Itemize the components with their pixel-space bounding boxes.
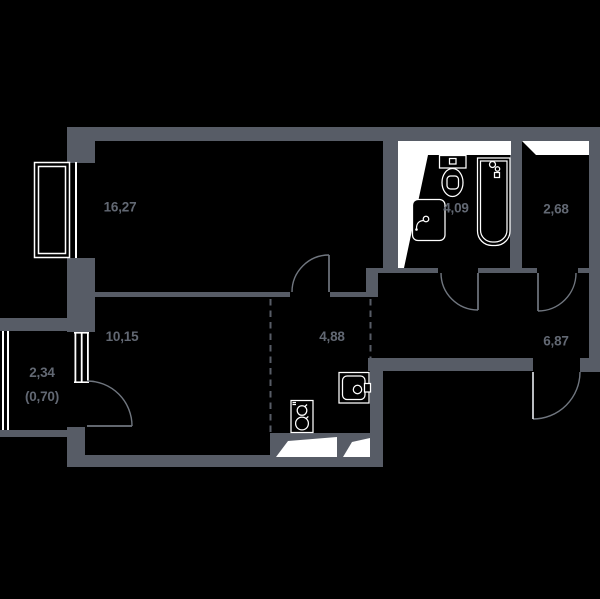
wall-right bbox=[589, 127, 600, 372]
window-pane-room1 bbox=[75, 162, 77, 258]
balcony-glazing-line-1 bbox=[2, 331, 4, 430]
balcony-window-cap-bottom bbox=[74, 381, 89, 383]
wall-hall-north-a bbox=[378, 268, 438, 273]
washbasin-icon bbox=[413, 200, 446, 241]
label-bathroom: 4,09 bbox=[443, 201, 468, 216]
balcony-wall-top bbox=[0, 318, 67, 331]
wall-left-mid bbox=[67, 258, 95, 332]
stove-icon bbox=[291, 401, 313, 433]
wall-corridor-bottom bbox=[368, 358, 533, 371]
floorplan-svg: 16,27 10,15 2,34 (0,70) 4,88 4,09 2,68 6… bbox=[0, 0, 600, 599]
label-hallway: 6,87 bbox=[543, 334, 568, 349]
label-wc: 2,68 bbox=[543, 202, 569, 217]
wall-top bbox=[67, 127, 600, 141]
wall-hall-connector bbox=[366, 268, 378, 297]
balcony-window-cap-top bbox=[74, 332, 89, 334]
wall-corridor-bottom-right bbox=[580, 358, 600, 372]
wall-left-upper bbox=[67, 127, 95, 163]
wall-bathroom-divider bbox=[510, 141, 522, 273]
balcony-wall-bottom bbox=[0, 430, 67, 437]
balcony-glazing-line-2 bbox=[7, 331, 9, 430]
kitchen-sink-icon bbox=[339, 373, 371, 404]
label-kitchen: 4,88 bbox=[319, 329, 345, 344]
floorplan-stage: 16,27 10,15 2,34 (0,70) 4,88 4,09 2,68 6… bbox=[0, 0, 600, 599]
label-room-16-27: 16,27 bbox=[104, 200, 137, 215]
balcony-window-line-3 bbox=[87, 332, 89, 383]
wall-left-lower-block bbox=[67, 427, 85, 467]
balcony-window-line-2 bbox=[81, 332, 83, 383]
bathtub-icon bbox=[478, 158, 511, 246]
wall-room1-south-left bbox=[95, 292, 290, 297]
label-balcony-area-secondary: (0,70) bbox=[25, 389, 59, 404]
wall-hall-north-b bbox=[478, 268, 537, 273]
wall-bottom-left bbox=[85, 455, 270, 467]
label-balcony-area: 2,34 bbox=[29, 365, 55, 380]
label-room-10-15: 10,15 bbox=[106, 329, 139, 344]
balcony-window-line-1 bbox=[75, 332, 77, 383]
wall-hall-north-c bbox=[578, 268, 589, 273]
wall-kitchen-connector bbox=[370, 371, 383, 433]
